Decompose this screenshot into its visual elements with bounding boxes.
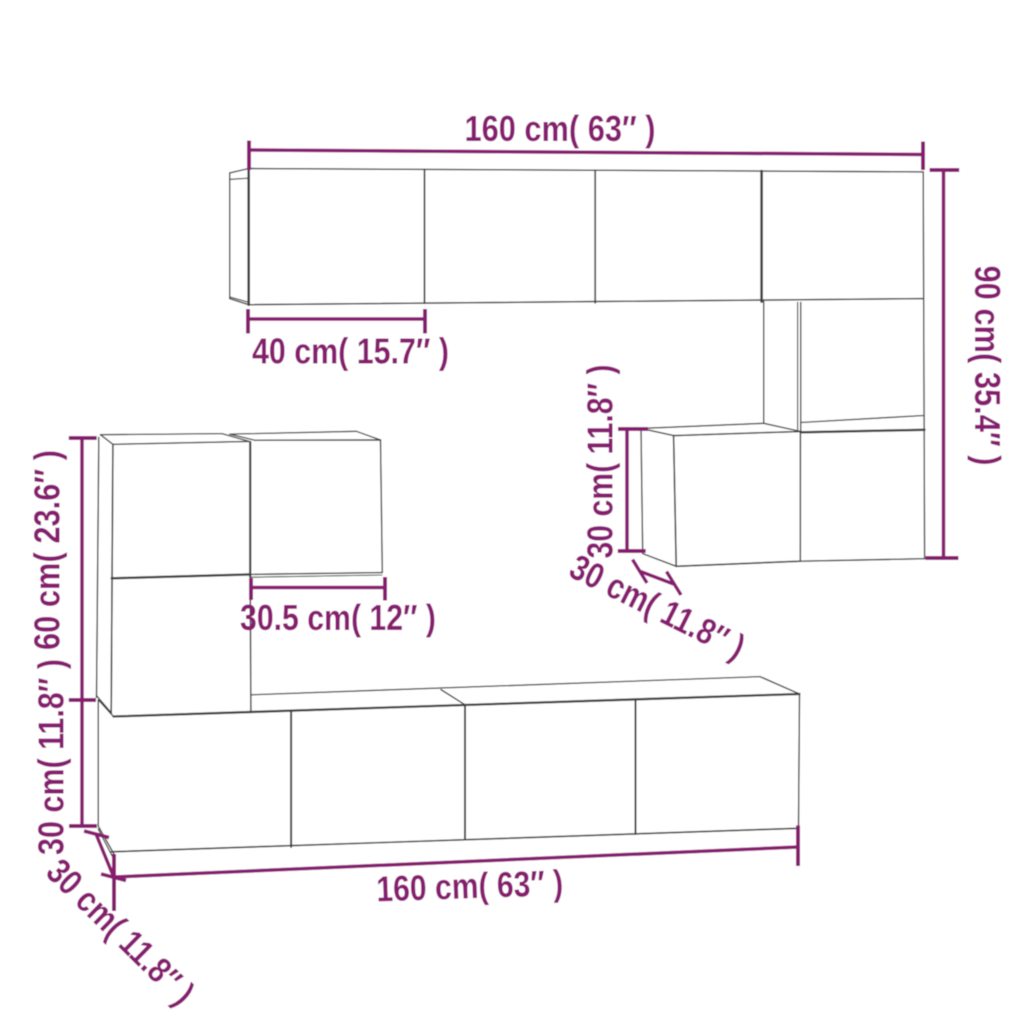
svg-text:90 cm( 35.4″ ): 90 cm( 35.4″ ) xyxy=(967,266,1008,466)
svg-text:160 cm( 63″ ): 160 cm( 63″ ) xyxy=(376,862,564,910)
svg-text:30.5 cm( 12″ ): 30.5 cm( 12″ ) xyxy=(240,597,436,638)
svg-text:30 cm( 11.8″ ): 30 cm( 11.8″ ) xyxy=(31,659,72,855)
svg-text:30 cm( 11.8″ ): 30 cm( 11.8″ ) xyxy=(580,365,621,559)
svg-text:40 cm( 15.7″ ): 40 cm( 15.7″ ) xyxy=(252,330,449,371)
svg-text:160 cm( 63″ ): 160 cm( 63″ ) xyxy=(465,108,656,149)
svg-text:60 cm( 23.6″ ): 60 cm( 23.6″ ) xyxy=(27,450,68,650)
